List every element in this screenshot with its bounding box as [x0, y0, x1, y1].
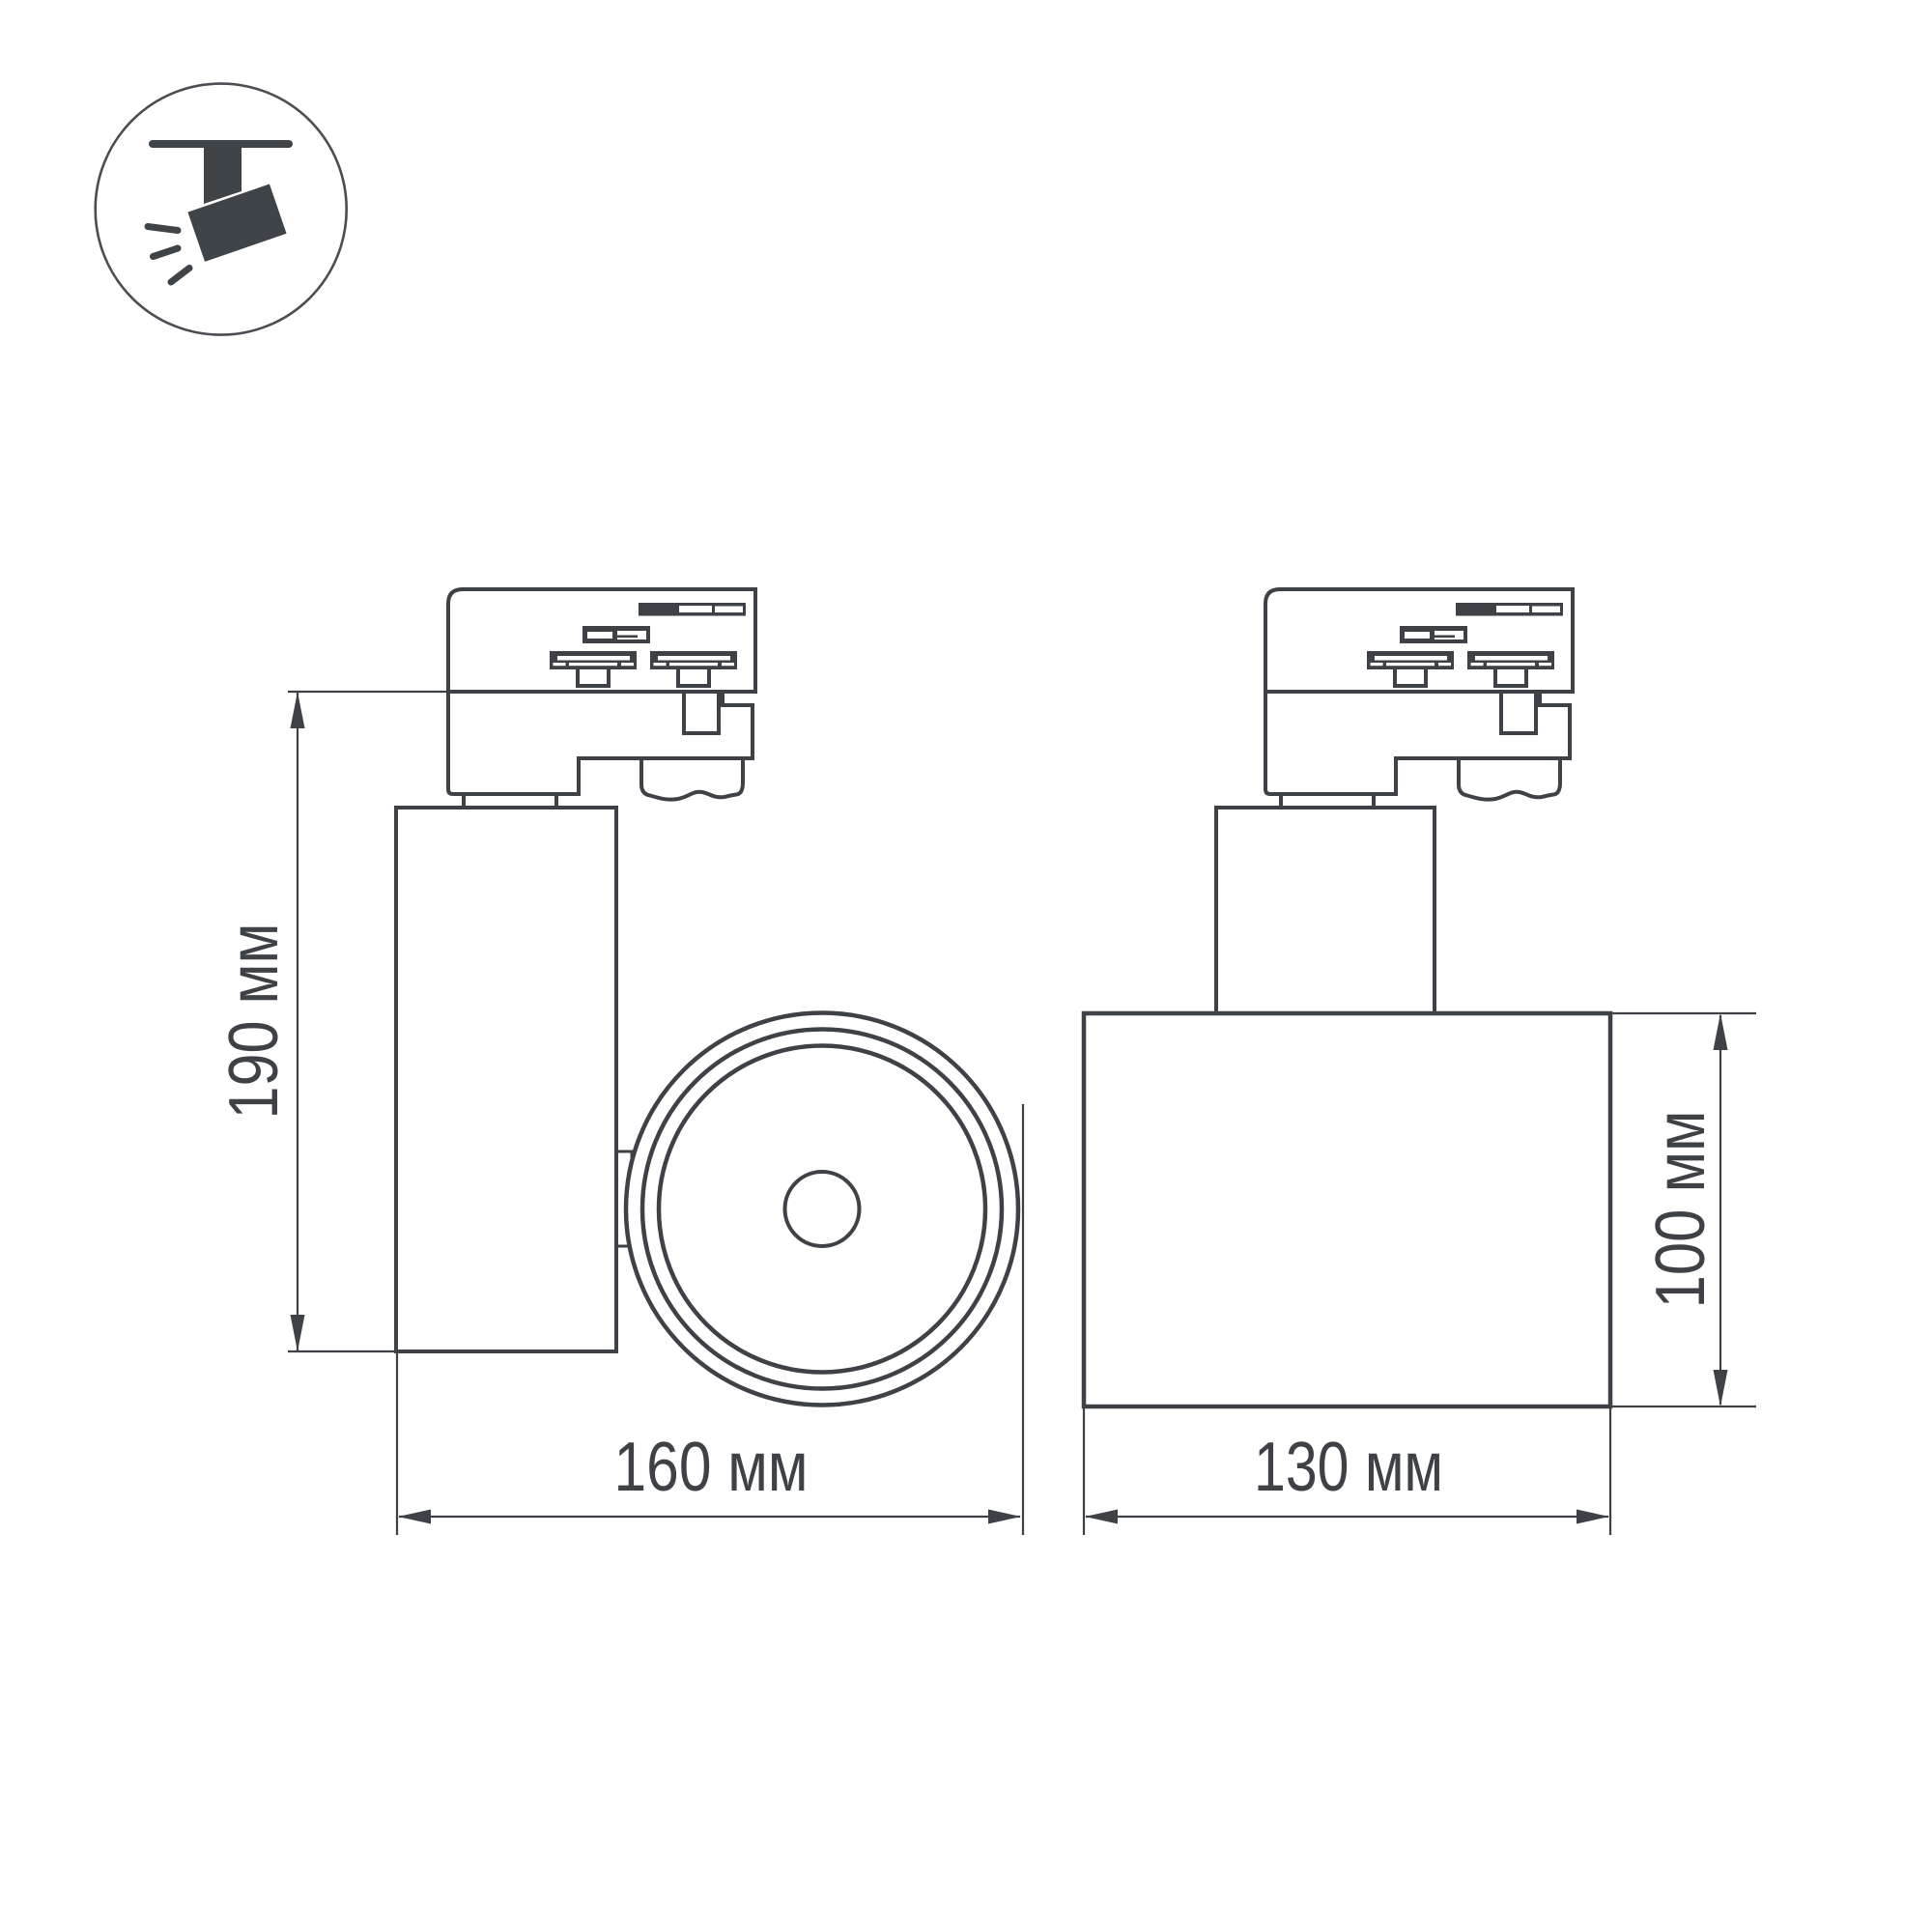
svg-text:190 мм: 190 мм — [215, 923, 293, 1120]
svg-text:100 мм: 100 мм — [1642, 1111, 1719, 1309]
svg-text:160 мм: 160 мм — [614, 1429, 809, 1506]
svg-text:130 мм: 130 мм — [1254, 1429, 1443, 1506]
